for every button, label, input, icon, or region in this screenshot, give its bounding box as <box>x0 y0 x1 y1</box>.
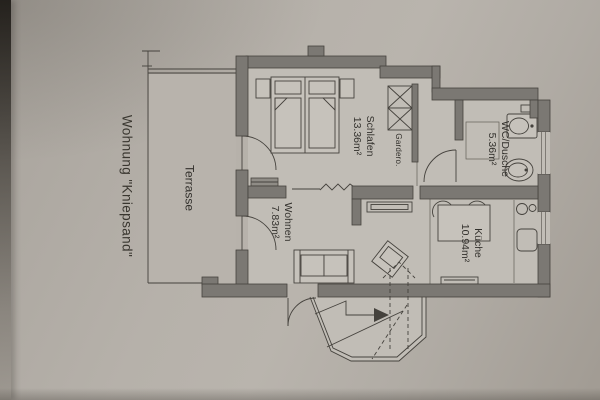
kitchen-window-sill <box>441 277 478 284</box>
wardrobe-icon <box>388 86 412 130</box>
scanned-floor-plan-page: Wohnung "Kniepsand" Terrasse Schlafen 13… <box>0 0 600 400</box>
room-label-kueche: Küche 10.94m² <box>458 224 484 263</box>
nightstand-right <box>340 79 354 98</box>
nightstand-left <box>256 79 270 98</box>
page-bottom-shadow <box>0 388 600 400</box>
entrance-bay-floor <box>310 297 426 361</box>
sofa-symbol <box>294 250 354 283</box>
pillow-right <box>309 81 335 94</box>
room-label-schlafen: Schlafen 13.36m² <box>350 116 376 157</box>
room-label-terrasse: Terrasse <box>182 165 197 211</box>
window-kitchen <box>538 212 550 244</box>
radiator-symbol <box>251 178 278 186</box>
room-label-garderobe: Gardero. <box>393 133 403 166</box>
window-wc <box>538 132 550 174</box>
terrace-railing <box>142 66 238 73</box>
pillow-left <box>275 81 301 94</box>
plan-title: Wohnung "Kniepsand" <box>118 115 135 257</box>
page-edge-shadow <box>0 0 11 400</box>
floor-plan-drawing <box>0 0 600 400</box>
sideboard-symbol <box>367 202 412 212</box>
double-bed-symbol <box>256 77 354 153</box>
room-label-wohnen: Wohnen 7.83m² <box>268 203 294 242</box>
room-label-wc: WC/Dusche 5.36m² <box>485 121 511 177</box>
